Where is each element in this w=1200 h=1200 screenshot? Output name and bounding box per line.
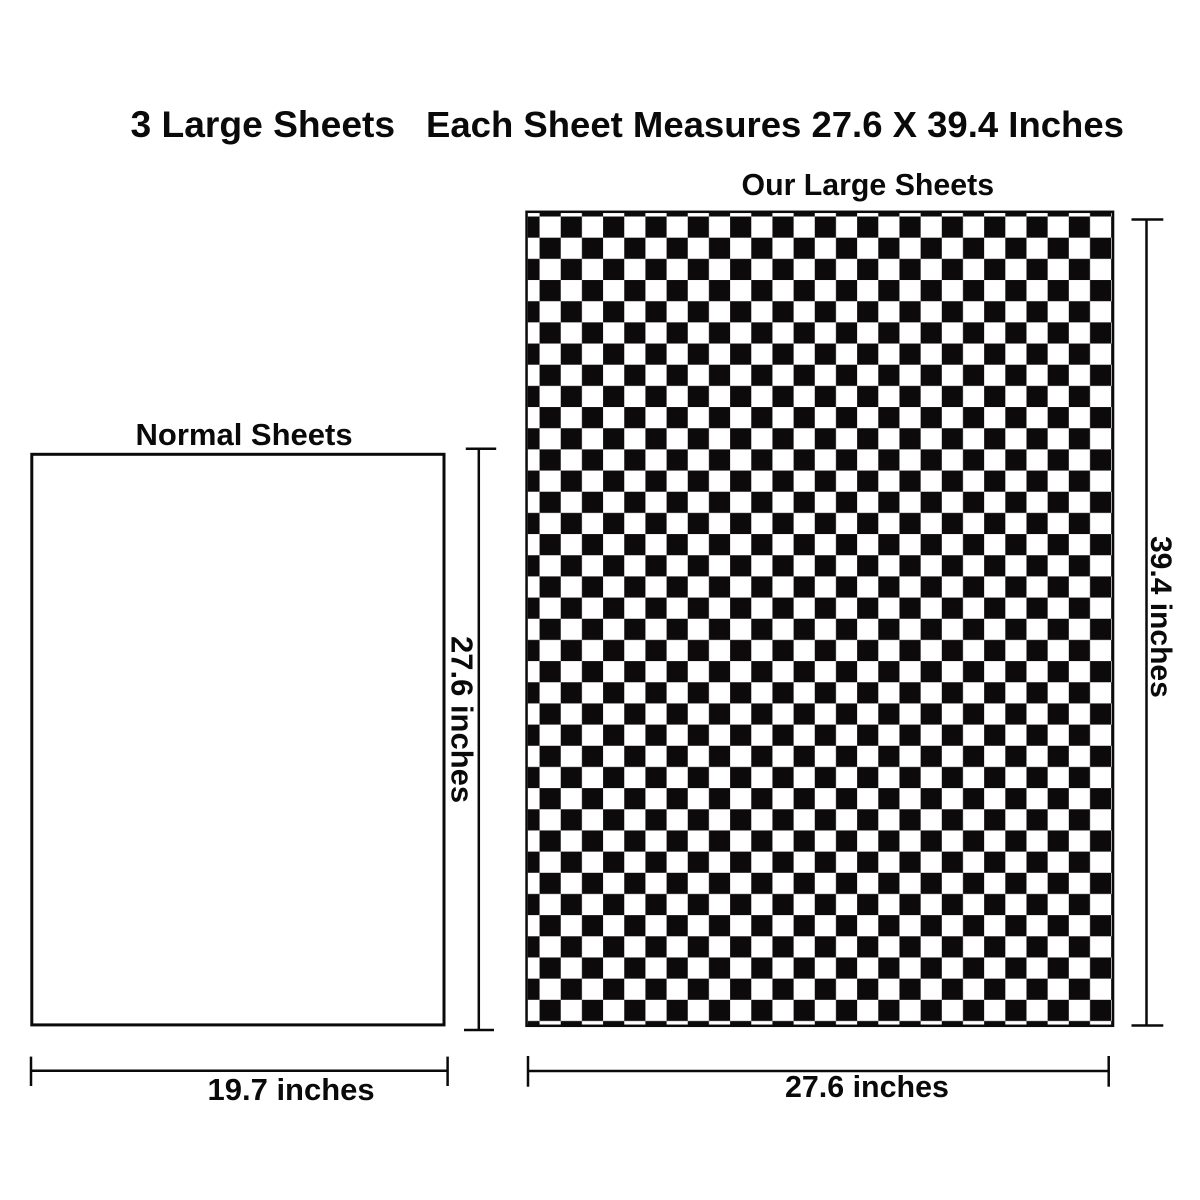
svg-text:Normal Sheets: Normal Sheets	[136, 417, 353, 452]
svg-text:3 Large Sheets: 3 Large Sheets	[131, 103, 396, 145]
svg-text:27.6 inches: 27.6 inches	[785, 1070, 949, 1104]
svg-text:39.4 inches: 39.4 inches	[1144, 536, 1177, 698]
svg-text:Each Sheet Measures 27.6 X 39.: Each Sheet Measures 27.6 X 39.4 Inches	[426, 104, 1124, 145]
svg-text:19.7 inches: 19.7 inches	[208, 1072, 375, 1107]
svg-text:Our Large Sheets: Our Large Sheets	[742, 169, 995, 202]
svg-text:27.6 inches: 27.6 inches	[445, 636, 480, 803]
